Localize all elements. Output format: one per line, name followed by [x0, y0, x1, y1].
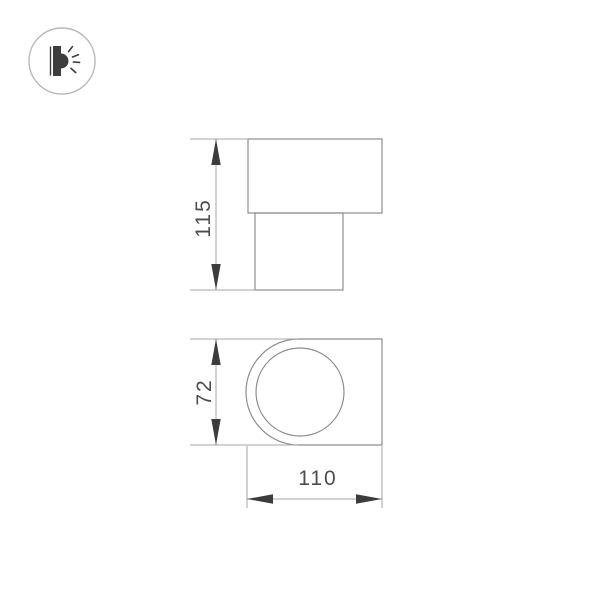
dimension-label-110: 110: [298, 467, 337, 490]
side-view-outline-group: [248, 139, 382, 290]
dimension-value: 72: [193, 378, 216, 405]
dimension-label-115: 115: [192, 198, 215, 237]
lens-circle-outline: [256, 348, 344, 436]
dimension-label-72: 72: [193, 378, 216, 405]
arrowhead-right-icon: [356, 494, 382, 503]
lamp-head-outline: [248, 139, 382, 213]
side-view: 115: [190, 139, 382, 290]
arrowhead-down-icon: [211, 264, 220, 290]
arrowhead-left-icon: [247, 494, 273, 503]
technical-drawing-canvas: 115 72: [0, 0, 600, 600]
arrowhead-up-icon: [211, 339, 220, 365]
lamp-body-bar: [53, 46, 61, 76]
lamp-body-outline: [246, 339, 382, 445]
dimension-value: 110: [298, 467, 337, 490]
lamp-base-outline: [255, 213, 343, 290]
dimension-drawing-page: 115 72: [0, 0, 600, 600]
arrowhead-down-icon: [211, 419, 220, 445]
brand-logo: [29, 28, 95, 94]
dimension-value: 115: [192, 198, 215, 237]
front-view-outline-group: [246, 339, 382, 445]
arrowhead-up-icon: [211, 139, 220, 165]
front-view: 72 110: [190, 339, 382, 508]
